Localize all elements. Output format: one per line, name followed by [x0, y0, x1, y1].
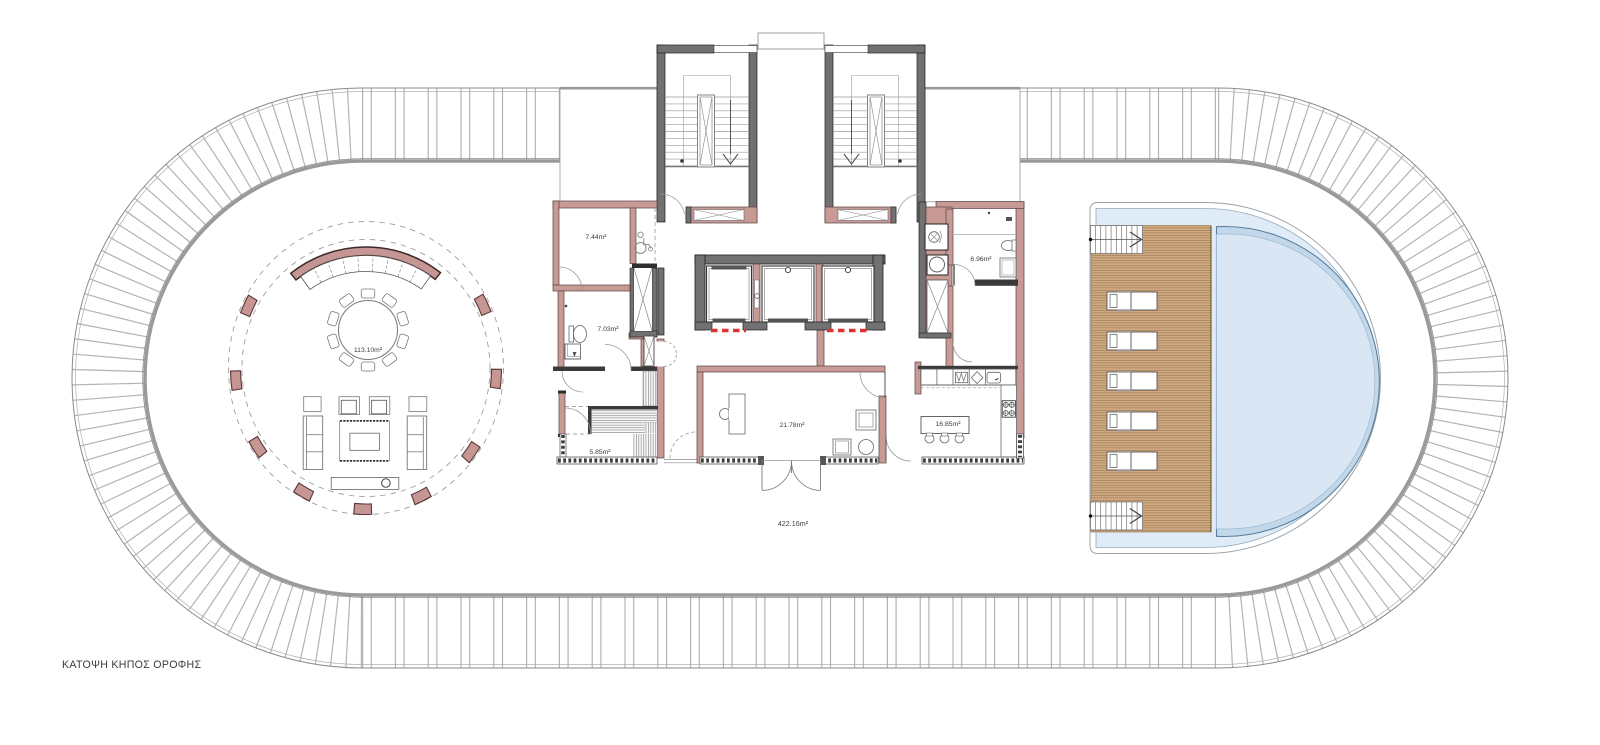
- svg-text:7.03m²: 7.03m²: [597, 326, 619, 333]
- svg-text:113.10m²: 113.10m²: [354, 347, 383, 354]
- svg-text:16.85m²: 16.85m²: [936, 421, 962, 428]
- svg-text:5.85m²: 5.85m²: [589, 449, 611, 456]
- svg-text:422.16m²: 422.16m²: [778, 519, 809, 528]
- svg-text:7.44m²: 7.44m²: [585, 234, 607, 241]
- svg-text:ΚΑΤΟΨΗ ΚΗΠΟΣ ΟΡΟΦΗΣ: ΚΑΤΟΨΗ ΚΗΠΟΣ ΟΡΟΦΗΣ: [62, 659, 201, 671]
- svg-text:21.78m²: 21.78m²: [780, 422, 806, 429]
- svg-text:6.96m²: 6.96m²: [970, 256, 992, 263]
